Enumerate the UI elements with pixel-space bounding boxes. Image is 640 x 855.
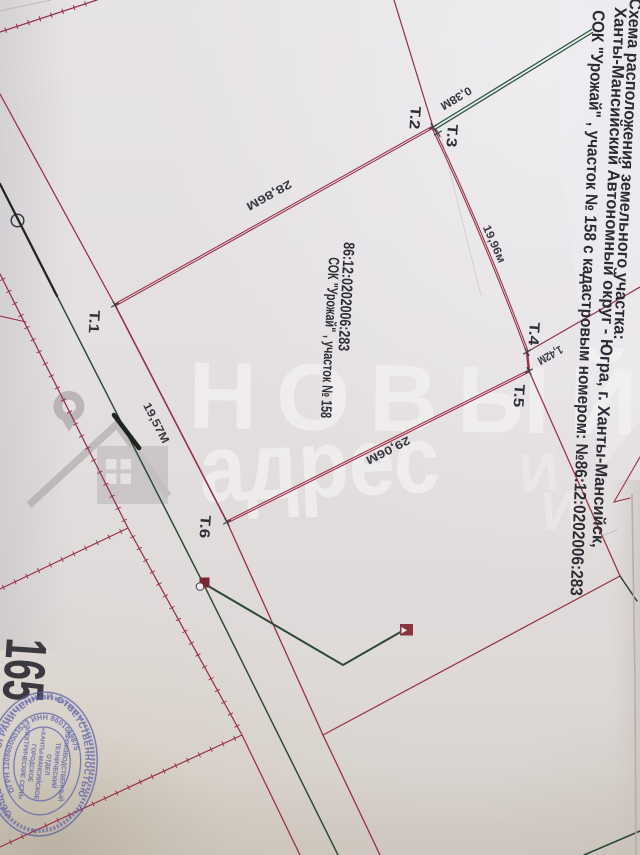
svg-text:Т.3: Т.3 — [442, 124, 460, 148]
svg-text:адрес: адрес — [197, 406, 441, 523]
svg-text:Т.4: Т.4 — [524, 322, 542, 346]
svg-text:Т.1: Т.1 — [85, 310, 102, 334]
svg-text:Т.5: Т.5 — [509, 384, 527, 408]
svg-text:Т.6: Т.6 — [195, 515, 213, 539]
svg-text:Т.2: Т.2 — [405, 106, 423, 130]
